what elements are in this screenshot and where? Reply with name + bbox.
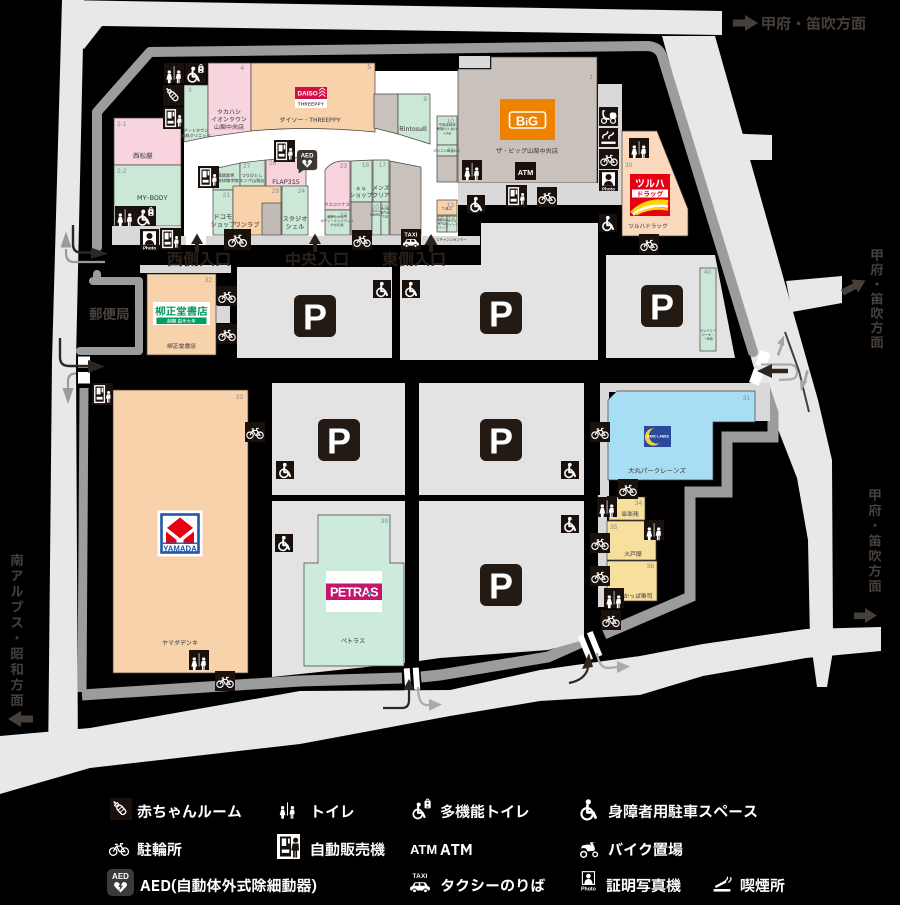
svg-text:10: 10 bbox=[447, 118, 455, 125]
svg-text:11: 11 bbox=[447, 147, 454, 154]
svg-text:ATM: ATM bbox=[410, 842, 437, 857]
svg-text:39: 39 bbox=[381, 518, 389, 525]
svg-text:18: 18 bbox=[362, 162, 370, 169]
svg-text:5: 5 bbox=[367, 64, 371, 71]
svg-text:1: 1 bbox=[589, 74, 593, 81]
svg-text:34: 34 bbox=[635, 500, 643, 507]
svg-text:24: 24 bbox=[298, 188, 306, 195]
svg-text:4: 4 bbox=[240, 65, 244, 72]
svg-text:TAXI: TAXI bbox=[413, 873, 428, 880]
svg-text:19: 19 bbox=[381, 204, 389, 211]
svg-text:36: 36 bbox=[647, 563, 655, 570]
svg-text:AED: AED bbox=[112, 872, 129, 881]
svg-text:2-2: 2-2 bbox=[117, 168, 127, 175]
svg-text:THREEPPY: THREEPPY bbox=[298, 101, 324, 106]
svg-text:30: 30 bbox=[625, 162, 633, 169]
svg-text:21: 21 bbox=[223, 192, 231, 199]
svg-text:22: 22 bbox=[340, 212, 348, 219]
svg-text:YAMADA: YAMADA bbox=[163, 545, 197, 554]
svg-text:15: 15 bbox=[437, 216, 445, 223]
svg-text:2-1: 2-1 bbox=[117, 121, 127, 128]
svg-text:31: 31 bbox=[743, 395, 751, 402]
svg-text:20: 20 bbox=[372, 204, 380, 211]
svg-text:DAISO: DAISO bbox=[298, 91, 318, 98]
svg-text:9: 9 bbox=[423, 96, 427, 103]
svg-text:33: 33 bbox=[236, 394, 244, 401]
svg-text:29: 29 bbox=[272, 188, 280, 195]
svg-text:27: 27 bbox=[243, 163, 251, 170]
svg-text:Photo: Photo bbox=[581, 887, 597, 893]
svg-text:23: 23 bbox=[340, 163, 348, 170]
svg-text:32: 32 bbox=[205, 277, 213, 284]
svg-text:3: 3 bbox=[188, 87, 192, 94]
svg-text:PARC LANES: PARC LANES bbox=[647, 435, 670, 439]
svg-text:35: 35 bbox=[610, 524, 618, 531]
svg-text:17: 17 bbox=[379, 162, 387, 169]
svg-text:13: 13 bbox=[447, 202, 455, 209]
svg-text:14: 14 bbox=[448, 216, 456, 223]
svg-text:40: 40 bbox=[704, 269, 712, 276]
